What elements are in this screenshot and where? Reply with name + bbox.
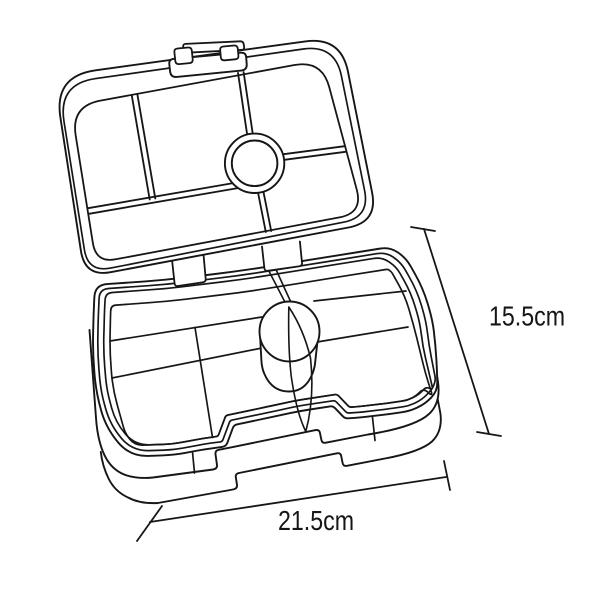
svg-text:21.5cm: 21.5cm: [278, 505, 354, 536]
svg-text:15.5cm: 15.5cm: [489, 301, 565, 332]
